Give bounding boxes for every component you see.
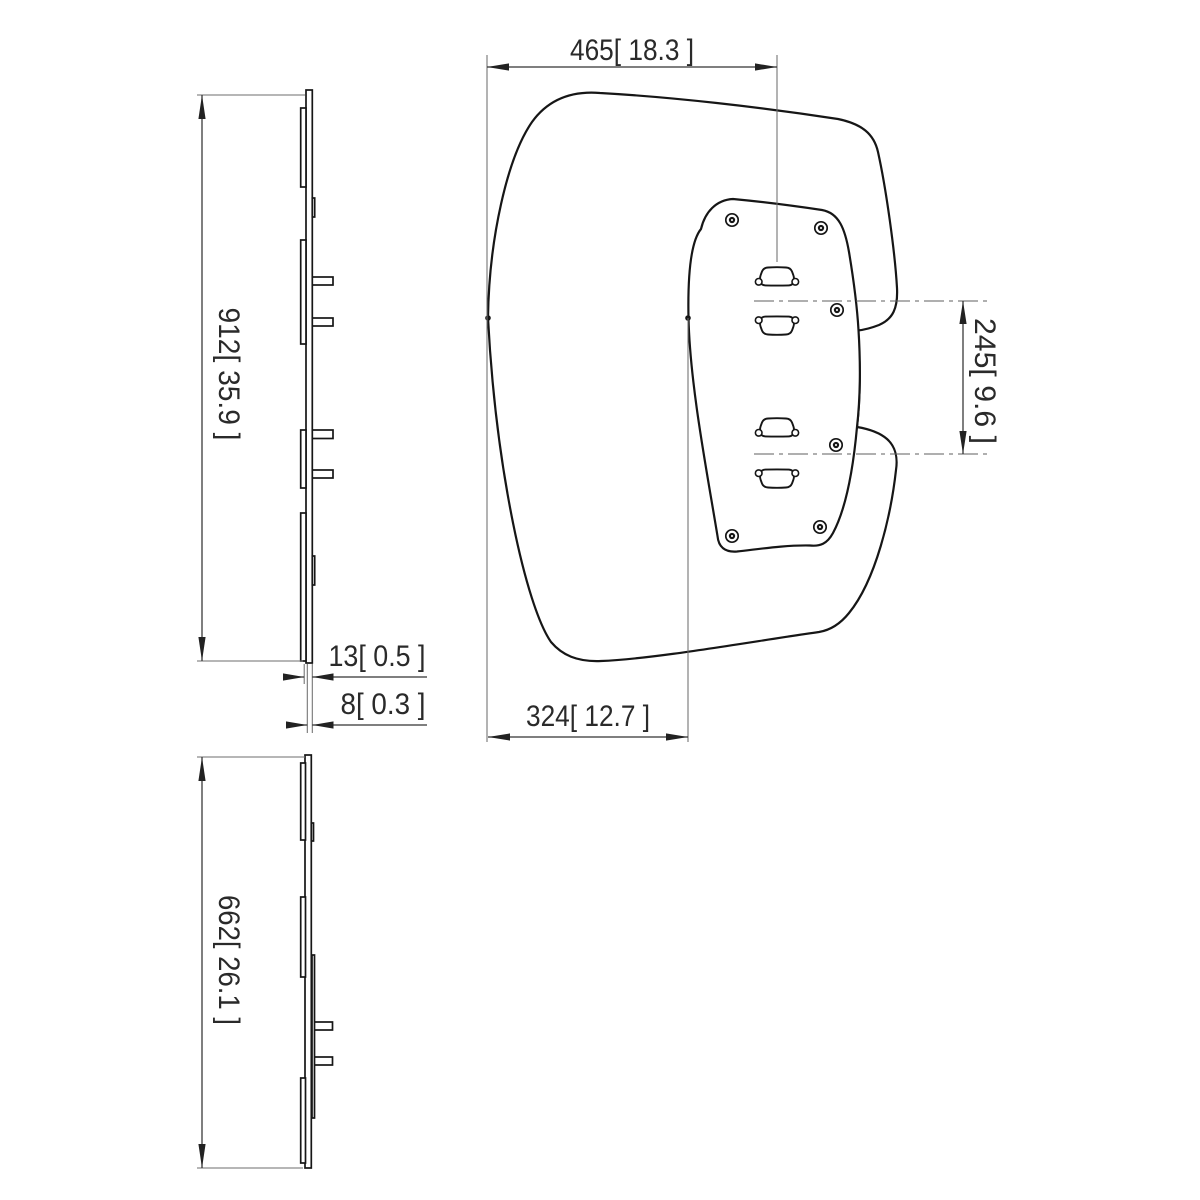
arrowhead-right (755, 63, 777, 70)
dim-thickness-plate: 8[ 0.3 ] (286, 664, 427, 733)
screw-hole-right-lower (830, 439, 842, 451)
side-hook-tab-4 (312, 470, 334, 478)
side-strip-4 (301, 513, 306, 661)
edge-back-rib-2 (312, 955, 315, 1118)
screw-hole-bottom-right (814, 521, 826, 533)
dim-label-324: 324[ 12.7 ] (526, 700, 650, 733)
screw-hole-top-left (726, 214, 738, 226)
side-strip-2 (301, 240, 306, 344)
front-mounting-plate-outline (688, 199, 859, 552)
edge-back-rib-1 (311, 823, 313, 841)
side-back-rib-1 (312, 198, 314, 217)
side-strip-3 (301, 430, 306, 488)
edge-strip-1 (301, 763, 306, 840)
arrowhead-right (286, 721, 307, 728)
arrowhead-right (666, 733, 688, 740)
side-hook-tab-2 (312, 318, 334, 326)
dim-label-245: 245[ 9.6 ] (968, 318, 1001, 444)
screw-hole-bottom-left (726, 530, 738, 542)
side-hook-tab-1 (312, 277, 334, 285)
tangent-point-left-edge (485, 315, 491, 321)
dim-label-912: 912[ 35.9 ] (212, 308, 245, 441)
arrowhead-down (198, 637, 205, 661)
arrowhead-left (312, 673, 333, 680)
arrowhead-down (959, 431, 966, 454)
arrowhead-left (488, 733, 510, 740)
dim-panel-width: 662[ 26.1 ] (197, 757, 305, 1168)
side-strip-1 (301, 108, 306, 187)
arrowhead-up (959, 301, 966, 324)
arrowhead-down (198, 1144, 205, 1168)
drawing-canvas: 465[ 18.3 ] 245[ 9.6 ] 324[ 12.7 ] 912[ … (0, 0, 1200, 1200)
dim-label-465: 465[ 18.3 ] (570, 34, 694, 67)
arrowhead-up (198, 757, 205, 781)
dim-label-662: 662[ 26.1 ] (212, 895, 245, 1025)
dim-panel-height: 912[ 35.9 ] (197, 95, 305, 661)
front-view (485, 93, 897, 661)
arrowhead-up (198, 95, 205, 119)
side-hook-tab-3 (312, 430, 334, 439)
dim-label-13: 13[ 0.5 ] (329, 640, 426, 673)
mount-slot-4 (755, 469, 798, 487)
screw-hole-top-right (815, 222, 827, 234)
edge-strip-2 (301, 897, 306, 977)
side-view-height (301, 90, 333, 663)
mount-slot-3 (755, 418, 798, 436)
dim-label-8: 8[ 0.3 ] (341, 688, 426, 721)
side-panel-spine (306, 90, 312, 663)
arrowhead-left (487, 63, 509, 70)
edge-strip-3 (301, 1078, 306, 1163)
screw-hole-right-upper (831, 304, 843, 316)
mount-slot-2 (755, 316, 798, 334)
arrowhead-right (283, 673, 304, 680)
side-back-rib-2 (312, 556, 314, 585)
arrowhead-left (312, 721, 333, 728)
edge-view-width (301, 755, 333, 1168)
mount-slot-1 (755, 267, 798, 285)
